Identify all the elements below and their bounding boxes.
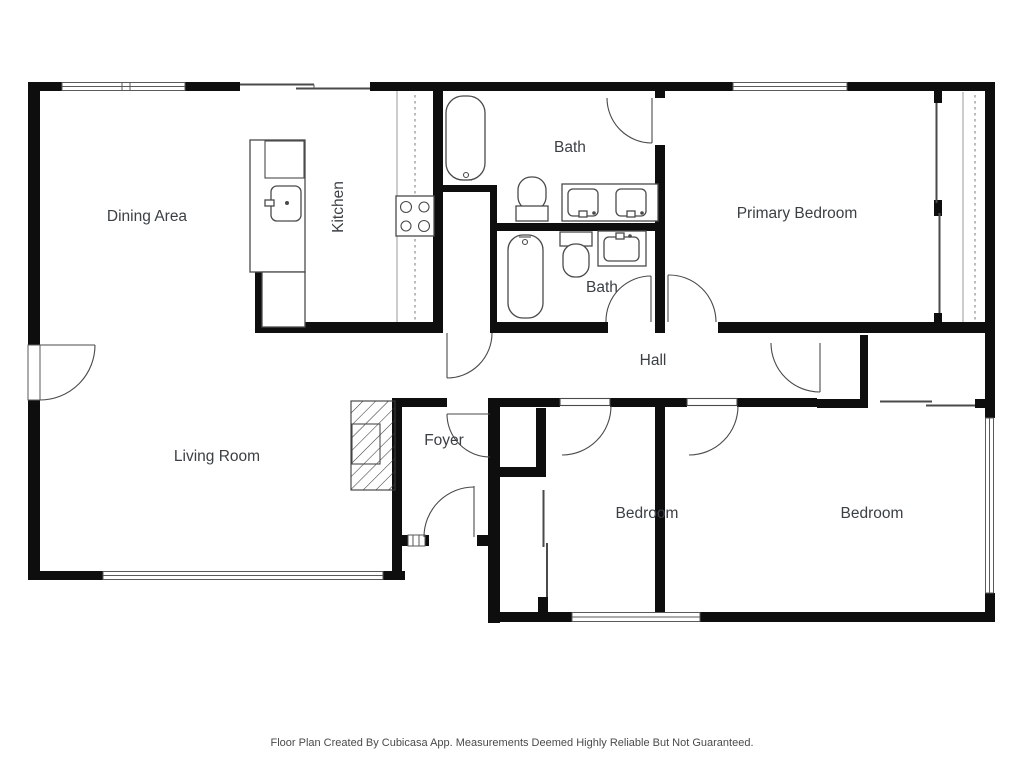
window-living-bottom bbox=[103, 572, 383, 580]
footer-credit-text: Floor Plan Created By Cubicasa App. Meas… bbox=[270, 737, 753, 749]
bathtub-lower-symbol bbox=[508, 235, 543, 318]
door-layer bbox=[28, 98, 975, 597]
floor-plan-page: Dining Area Kitchen Bath Primary Bedroom… bbox=[0, 0, 1024, 768]
stove-symbol bbox=[396, 196, 434, 236]
door-front-entry bbox=[424, 486, 474, 537]
door-hall-end-closet bbox=[771, 343, 820, 392]
door-primary-bath bbox=[607, 98, 652, 143]
toilet-upper-symbol bbox=[516, 177, 548, 221]
window-primary-top bbox=[733, 83, 847, 91]
vanity-upper-symbol bbox=[562, 184, 658, 221]
room-label-living-room: Living Room bbox=[174, 448, 260, 465]
room-label-kitchen: Kitchen bbox=[330, 181, 347, 233]
toilet-lower-symbol bbox=[560, 232, 592, 277]
room-label-foyer: Foyer bbox=[424, 432, 464, 449]
window-entry-sidelight bbox=[408, 535, 425, 546]
sliding-door-closet-bedroom-right bbox=[880, 402, 975, 406]
window-bedroom-bottom bbox=[572, 613, 700, 622]
window-bedroom-right bbox=[986, 418, 994, 593]
door-bedroom-left bbox=[560, 399, 611, 456]
sliding-door-bedroom-left-closet bbox=[544, 490, 548, 597]
floor-plan-drawing: Dining Area Kitchen Bath Primary Bedroom… bbox=[0, 0, 1024, 768]
room-label-hall: Hall bbox=[640, 352, 667, 369]
room-label-dining-area: Dining Area bbox=[107, 208, 188, 225]
room-label-bedroom-right: Bedroom bbox=[841, 505, 904, 522]
wall-layer bbox=[28, 82, 995, 623]
sliding-door-kitchen-top bbox=[240, 85, 370, 89]
sink-lower-symbol bbox=[598, 231, 646, 266]
window-layer bbox=[62, 83, 994, 622]
room-label-bath-lower: Bath bbox=[586, 279, 618, 296]
room-label-primary-bedroom: Primary Bedroom bbox=[737, 205, 858, 222]
door-bedroom-right bbox=[687, 399, 738, 456]
window-dining-top bbox=[62, 83, 185, 91]
door-dining-exterior bbox=[28, 345, 95, 400]
room-label-bath-upper: Bath bbox=[554, 139, 586, 156]
door-primary-bedroom bbox=[668, 275, 716, 322]
bathtub-upper-symbol bbox=[446, 96, 485, 180]
door-hall-closet bbox=[447, 333, 492, 378]
primary-closet-symbol bbox=[963, 92, 975, 322]
room-label-bedroom-left: Bedroom bbox=[616, 505, 679, 522]
fireplace-symbol bbox=[351, 401, 395, 490]
